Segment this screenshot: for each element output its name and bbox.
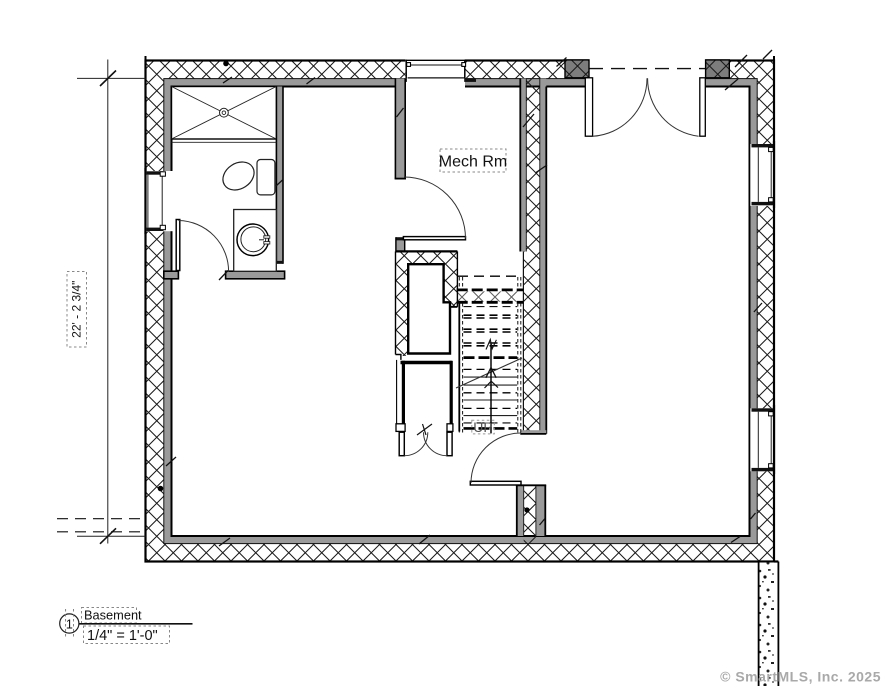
svg-text:Basement: Basement	[84, 608, 142, 623]
svg-text:1/4" = 1'-0": 1/4" = 1'-0"	[87, 628, 158, 644]
svg-text:© SmartMLS, Inc. 2025: © SmartMLS, Inc. 2025	[720, 669, 881, 685]
svg-text:UP: UP	[473, 419, 492, 435]
svg-text:1: 1	[66, 617, 73, 631]
svg-text:22' - 2 3/4": 22' - 2 3/4"	[70, 281, 84, 338]
svg-text:Mech Rm: Mech Rm	[439, 154, 507, 171]
